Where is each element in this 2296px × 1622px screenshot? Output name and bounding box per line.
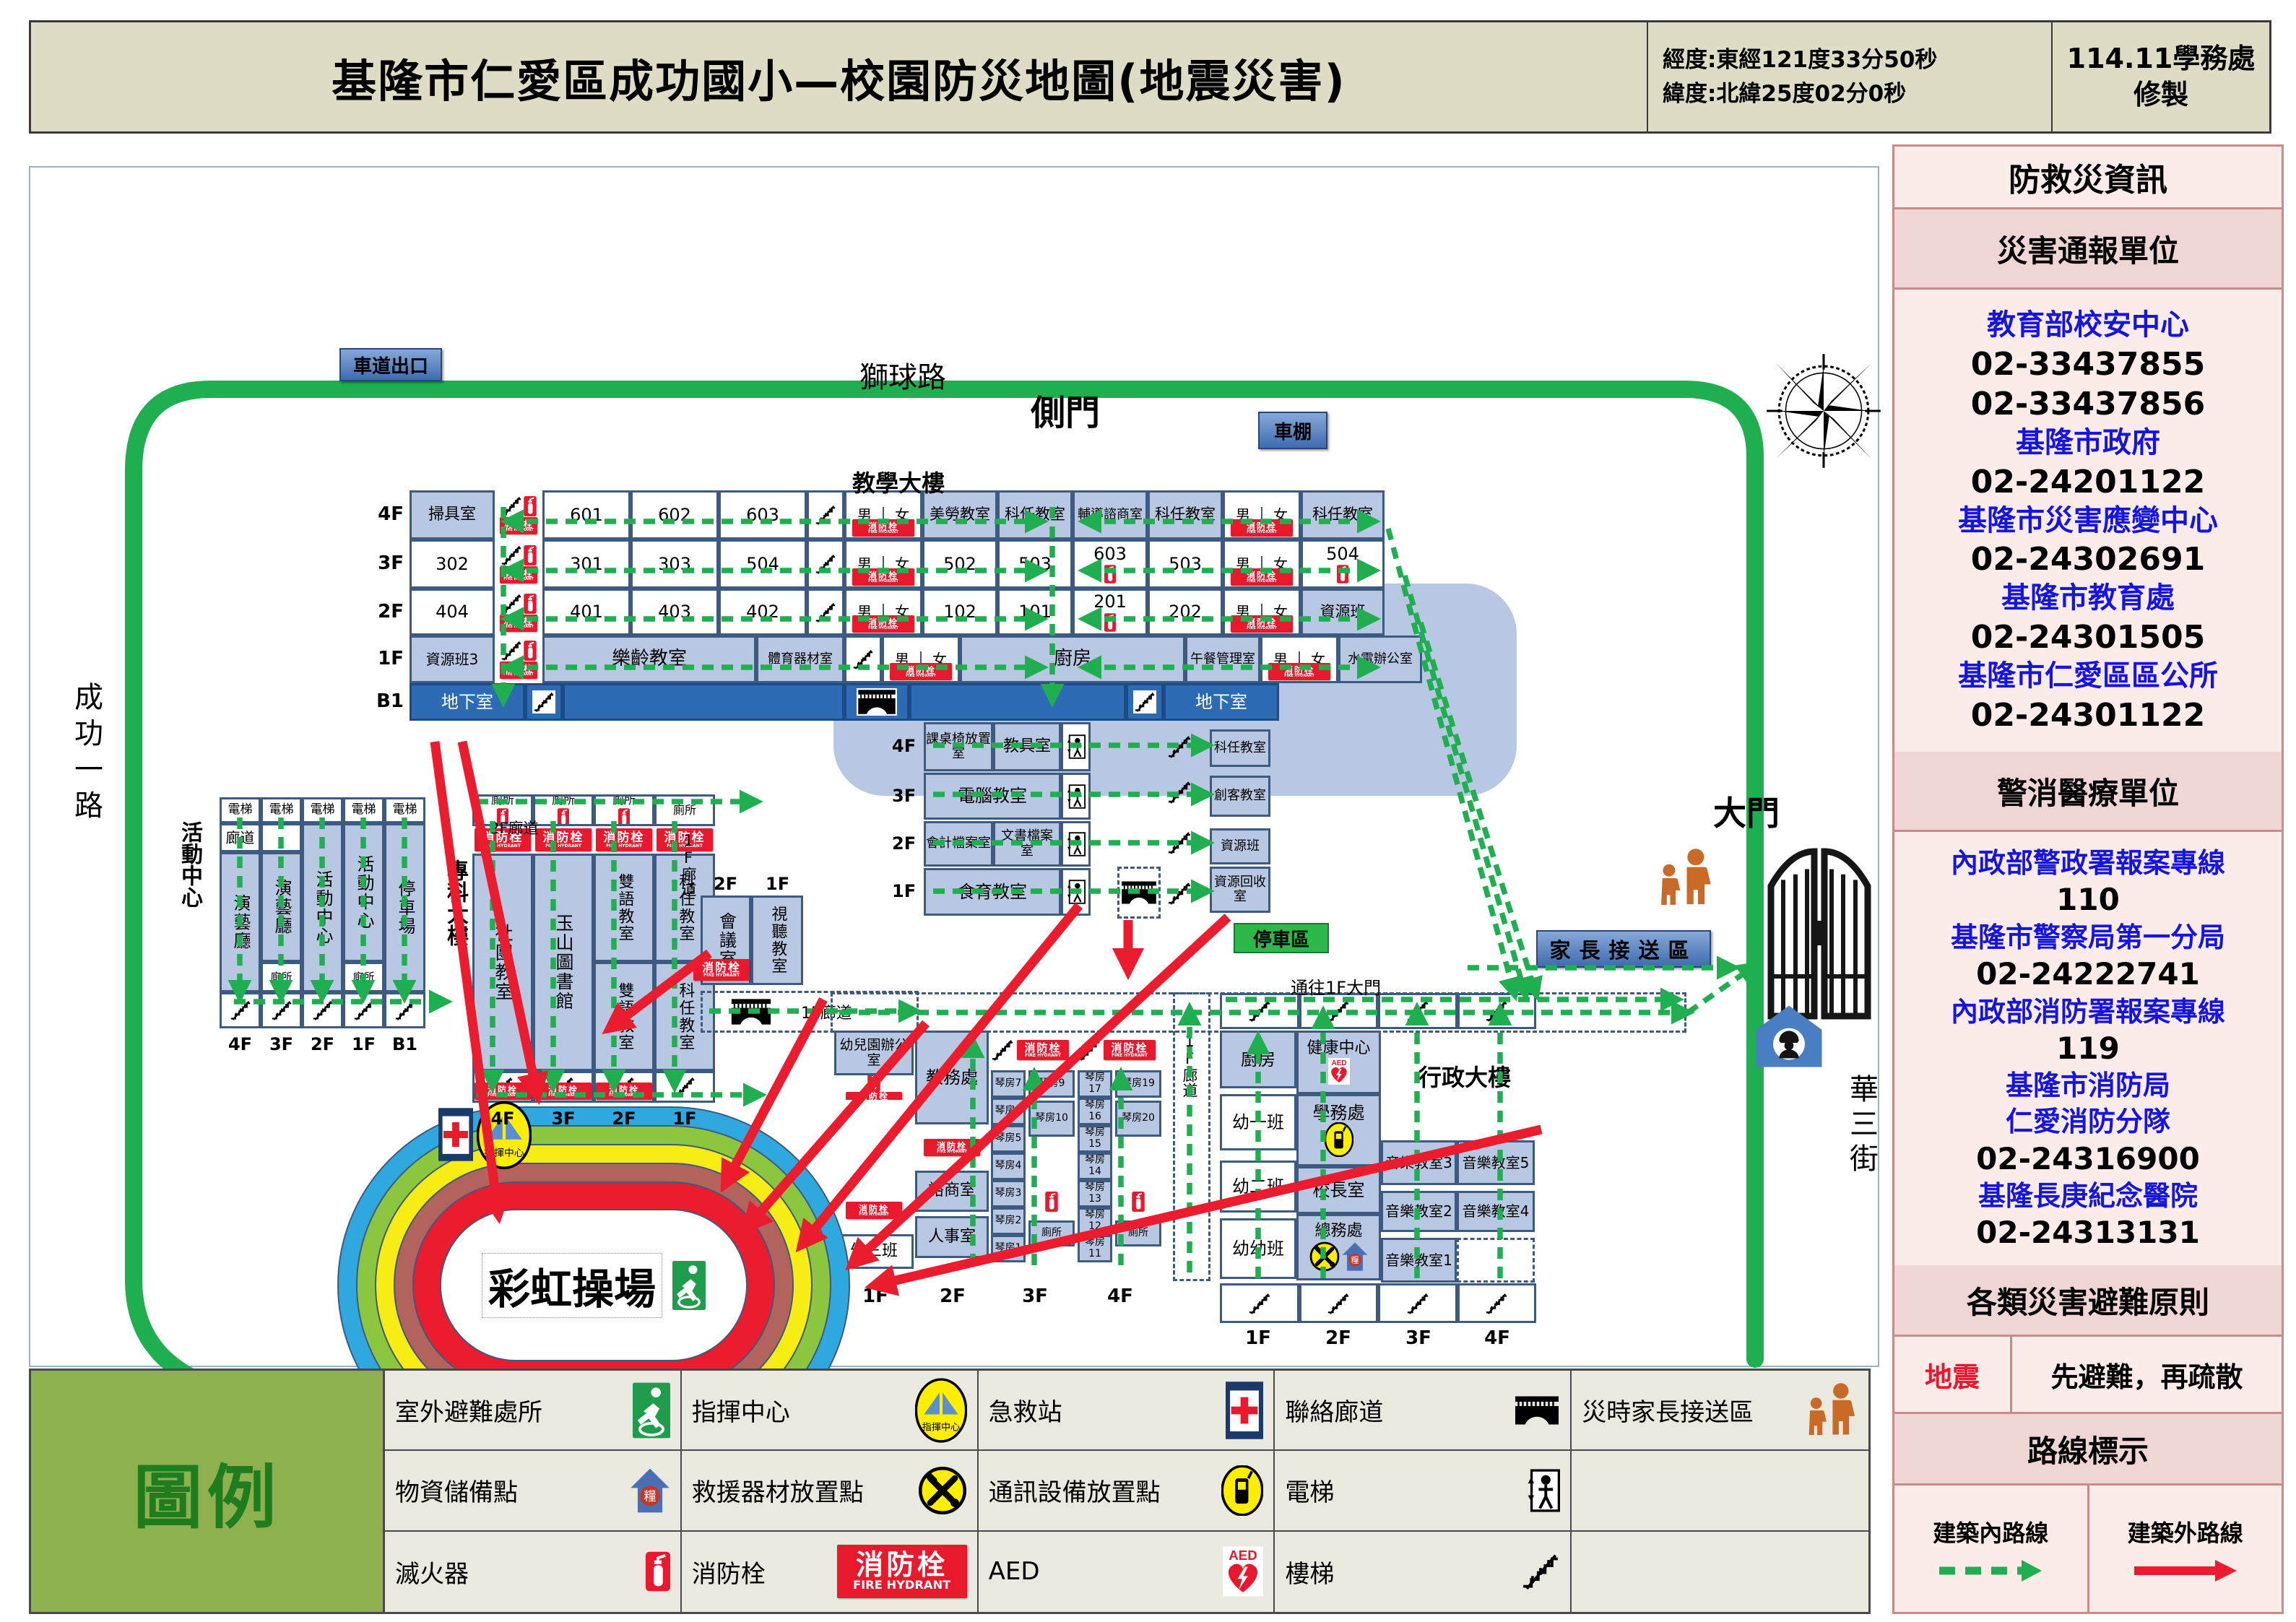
- room-cell: 資源回收室: [1210, 867, 1270, 913]
- route-outside: 建築外路線: [2089, 1486, 2282, 1612]
- agency-name: 基隆市仁愛區區公所: [1958, 657, 2218, 695]
- room-cell: 603: [719, 490, 807, 539]
- room-cell: 教務處: [915, 1031, 989, 1124]
- room-label: 幼二班: [1232, 1177, 1284, 1197]
- room-cell: 504: [1301, 539, 1385, 589]
- legend-item: 物資儲備點糧: [385, 1451, 682, 1531]
- room-label: 掃具室: [428, 506, 476, 524]
- legend-item-label: 通訊設備放置點: [989, 1473, 1215, 1508]
- fire-hydrant-sign: 消防栓FIRE HYDRANT: [1017, 1040, 1069, 1060]
- agency-phone: 02-24302691: [1971, 539, 2205, 579]
- room-cell: 課桌椅放置室: [924, 722, 993, 771]
- panel-section-header: 警消醫療單位: [1894, 752, 2282, 832]
- legend-item: 救援器材放置點: [682, 1451, 979, 1531]
- room-label: 603: [1093, 545, 1127, 564]
- room-label: 教務處: [926, 1068, 978, 1088]
- corridor-2f-label: 2F廊道: [490, 817, 538, 838]
- agency-name: 教育部校安中心: [1987, 306, 2189, 344]
- room-cell: 303: [631, 539, 719, 589]
- title-bar: 基隆市仁愛區成功國小—校園防災地圖(地震災害) 經度:東經121度33分50秒 …: [29, 20, 2271, 134]
- piano-rooms: 琴房17琴房16琴房15琴房14琴房13琴房12琴房11: [1078, 1070, 1112, 1262]
- floor-label: 4F: [1106, 1285, 1135, 1307]
- runman-icon: [633, 1382, 670, 1439]
- room-label: 學務處: [1313, 1103, 1365, 1123]
- fire-hydrant-sign: 消防栓FIRE HYDRANT: [846, 1092, 902, 1101]
- svg-text:指揮中心: 指揮中心: [922, 1421, 960, 1432]
- room-label: 廁所: [270, 971, 292, 984]
- room-cell: 琴房12: [1078, 1207, 1112, 1235]
- room-label: 電梯: [269, 803, 294, 817]
- stairs-icon: [501, 545, 522, 566]
- piano-rooms: 琴房9琴房10廁所: [1028, 1070, 1075, 1246]
- building-column: 健康中心AED學務處校長室總務處糧: [1296, 1031, 1381, 1280]
- ext-icon: [524, 496, 537, 516]
- room-label: 活動中心: [354, 855, 373, 930]
- room-cell: 體育器材室: [756, 636, 844, 683]
- fire-hydrant-sign: 消防栓FIRE HYDRANT: [1231, 615, 1293, 633]
- stairs-icon: [1167, 778, 1192, 807]
- agency-name: 基隆市教育處: [2001, 579, 2175, 617]
- room-label: 琴房12: [1080, 1210, 1110, 1232]
- lift-icon: [1527, 1468, 1560, 1513]
- room-label: 教具室: [1003, 738, 1051, 756]
- legend-item-label: 電梯: [1285, 1473, 1520, 1508]
- comm-icon: [1325, 1122, 1353, 1157]
- room-cell: 廁所: [343, 962, 384, 992]
- stairs-icon: [1521, 1552, 1560, 1591]
- map-cell: 男女消防栓FIRE HYDRANT: [844, 539, 922, 589]
- fire-hydrant-sign: 消防栓FIRE HYDRANT: [535, 1083, 592, 1100]
- admin-stair-row: [1220, 1283, 1536, 1323]
- room-cell: 幼二班: [1220, 1161, 1296, 1213]
- building-central-east: 科任教室創客教室資源班資源回收室: [1210, 729, 1270, 913]
- room-label: 玉山圖書館: [553, 914, 573, 1011]
- stairs-icon: [815, 504, 836, 526]
- floor-label: 3F: [1404, 1327, 1433, 1349]
- map-cell: 消防栓FIRE HYDRANT: [495, 490, 542, 539]
- panel-section-header: 路線標示: [1894, 1414, 2282, 1486]
- room-cell: 地下室: [410, 683, 525, 721]
- room-cell: 地下室: [1164, 683, 1279, 721]
- room-cell: 601: [542, 490, 631, 539]
- legend-item: 消防栓消防栓FIRE HYDRANT: [682, 1532, 979, 1612]
- room-cell: 校長室: [1296, 1166, 1381, 1214]
- room-label: 琴房6: [995, 1106, 1022, 1117]
- room-cell: 廁所: [654, 794, 715, 826]
- room-cell: 101: [997, 589, 1073, 636]
- room-cell: 503: [997, 539, 1073, 589]
- room-cell: 琴房1: [991, 1235, 1026, 1262]
- building-kg-2f: 教務處消防栓FIRE HYDRANT諮商室人事室: [915, 1031, 989, 1258]
- room-cell: 廊道: [220, 823, 261, 852]
- room-cell: 雙語教室: [594, 854, 654, 962]
- pickup-zone-label: 家長接送區: [1536, 930, 1711, 968]
- room-cell: 午餐管理室: [1185, 636, 1260, 683]
- legend-item: 滅火器: [385, 1532, 682, 1612]
- room-label: 音樂教室3: [1385, 1155, 1452, 1171]
- map-cell: [1028, 1183, 1075, 1220]
- gate-icon: [1762, 836, 1876, 1023]
- room-label: 303: [658, 555, 691, 574]
- legend-item-label: 指揮中心: [692, 1392, 908, 1428]
- hydrantbig-icon: 消防栓FIRE HYDRANT: [837, 1545, 967, 1598]
- legend-item-label: AED: [989, 1557, 1216, 1586]
- room-cell: 掃具室: [410, 490, 495, 539]
- rescue-icon: [1309, 1241, 1340, 1272]
- ext-icon: [524, 641, 537, 661]
- room-label: 403: [658, 602, 691, 622]
- svg-text:糧: 糧: [644, 1489, 656, 1503]
- route-outside-label: 建築外路線: [2128, 1515, 2243, 1548]
- room-label: 活動中心: [313, 870, 332, 945]
- aed-icon: AED: [1223, 1546, 1263, 1597]
- legend: 圖例 室外避難處所指揮中心指揮中心急救站聯絡廊道災時家長接送區物資儲備點糧救援器…: [29, 1369, 1871, 1614]
- room-label: 雙語教室: [615, 982, 633, 1051]
- firstaid-icon: [438, 1108, 473, 1161]
- room-label: 資源班3: [426, 651, 479, 667]
- room-cell: 102: [922, 589, 997, 636]
- room-label: 廁所: [352, 971, 374, 984]
- fire-hydrant-sign: 消防栓FIRE HYDRANT: [500, 615, 537, 632]
- room-cell: 創客教室: [1210, 776, 1270, 817]
- room-cell: 502: [922, 539, 997, 589]
- playground-label: 彩虹操場: [482, 1253, 662, 1318]
- agency-name: 仁愛消防分隊: [2006, 1103, 2170, 1140]
- room-cell: 402: [719, 589, 807, 636]
- agency-name: 基隆長庚紀念醫院: [1978, 1178, 2198, 1214]
- room-label: 401: [570, 602, 603, 622]
- floor-label: 3F: [269, 1034, 295, 1054]
- room-label: 301: [570, 555, 603, 574]
- room-label: 廁所: [673, 804, 696, 817]
- building-column: 廚房幼一班幼二班幼幼班: [1220, 1031, 1296, 1279]
- room-label: 廚房: [1054, 649, 1091, 669]
- agency-phone: 02-33437855: [1971, 344, 2205, 384]
- fire-hydrant-sign: 消防栓FIRE HYDRANT: [1104, 1040, 1156, 1060]
- legend-item: 急救站: [979, 1371, 1275, 1451]
- campus-map: 掃具室消防栓FIRE HYDRANT601602603男女消防栓FIRE HYD…: [29, 166, 1879, 1367]
- stairs-icon: [815, 602, 836, 623]
- room-cell: 演藝廳: [261, 852, 302, 962]
- map-cell: [563, 683, 844, 721]
- street-left: 成功一路: [65, 682, 107, 826]
- room-label: 琴房7: [995, 1078, 1022, 1090]
- room-cell: 人事室: [915, 1216, 989, 1258]
- room-cell: 廁所: [594, 794, 654, 826]
- room-cell: 音樂教室2: [1381, 1191, 1457, 1232]
- legend-item: 樓梯: [1275, 1532, 1572, 1612]
- aed-icon: AED: [1328, 1058, 1350, 1085]
- map-cell: [343, 992, 384, 1028]
- room-cell: 科任教室: [1148, 490, 1223, 539]
- panel-section-header: 災害通報單位: [1894, 209, 2282, 290]
- room-cell: 幼一班: [1220, 1094, 1296, 1150]
- map-cell: 消防栓FIRE HYDRANT: [915, 1124, 989, 1171]
- room-cell: 琴房9: [1028, 1070, 1075, 1098]
- room-label: 雙語教室: [615, 873, 633, 942]
- room-label: 琴房13: [1080, 1182, 1110, 1205]
- room-label: 總務處: [1314, 1223, 1362, 1241]
- stairs-icon: [353, 999, 375, 1021]
- fire-hydrant-sign: 消防栓FIRE HYDRANT: [693, 959, 750, 981]
- room-cell: 電梯: [261, 797, 302, 823]
- parentchild-icon: [1657, 848, 1715, 908]
- map-cell: [807, 490, 844, 539]
- room-label: 琴房11: [1080, 1237, 1110, 1259]
- floor-label: 2F: [310, 1034, 336, 1054]
- floor-label: 4F: [892, 736, 916, 756]
- info-panel: 防救災資訊災害通報單位教育部校安中心02-3343785502-33437856…: [1892, 144, 2284, 1614]
- floor-label: 1F: [372, 648, 404, 669]
- legend-item-label: 救援器材放置點: [692, 1473, 911, 1508]
- map-cell: [384, 992, 425, 1028]
- room-cell: 201: [1073, 589, 1148, 636]
- panel-title: 防救災資訊: [1894, 147, 2282, 209]
- main-gate-icon: [1762, 836, 1878, 1025]
- stairs-icon: [815, 553, 836, 575]
- fire-hydrant-sign: 消防栓FIRE HYDRANT: [500, 566, 537, 584]
- room-cell: 健康中心AED: [1296, 1031, 1381, 1094]
- room-label: 廊道: [226, 830, 255, 846]
- room-cell: 水電辦公室: [1338, 636, 1422, 683]
- room-label: 琴房16: [1080, 1100, 1110, 1122]
- route-key-row: 建築內路線 建築外路線: [1894, 1486, 2282, 1612]
- room-label: 演藝廳: [230, 894, 250, 950]
- room-label: 文書檔案室: [995, 829, 1059, 858]
- map-cell: 消防栓FIRE HYDRANT: [533, 826, 594, 854]
- room-cell: 琴房15: [1078, 1125, 1112, 1153]
- floor-label: 2F: [372, 601, 404, 623]
- room-label: 幼幼班: [1232, 1239, 1284, 1259]
- room-cell: 403: [631, 589, 719, 636]
- room-label: 人事室: [928, 1228, 976, 1246]
- ext-icon: [524, 594, 537, 614]
- disaster-rule: 先避難，再疏散: [2012, 1337, 2282, 1412]
- map-cell: [261, 823, 302, 852]
- room-label: 課桌椅放置室: [926, 732, 991, 761]
- version-note: 114.11學務處 修製: [2051, 22, 2269, 131]
- piano-rooms: 琴房7琴房6琴房5琴房4琴房3琴房2琴房1: [991, 1070, 1026, 1262]
- main-gate-label: 大門: [1713, 787, 1780, 835]
- map-cell: [261, 992, 302, 1028]
- parking-zone-label: 停車區: [1234, 923, 1329, 953]
- link-bridge: [1117, 867, 1161, 919]
- fire-hydrant-sign: 消防栓FIRE HYDRANT: [852, 519, 914, 537]
- stairs-icon: [1406, 1292, 1429, 1315]
- floor-label: B1: [372, 690, 404, 712]
- map-cell: 消防栓FIRE HYDRANT: [533, 1071, 594, 1103]
- fire-hydrant-sign: 消防栓FIRE HYDRANT: [852, 568, 914, 586]
- disaster-type: 地震: [1894, 1337, 2012, 1412]
- fire-hydrant-sign: 消防栓FIRE HYDRANT: [500, 517, 537, 534]
- fire-hydrant-sign: 消防栓FIRE HYDRANT: [500, 662, 537, 679]
- svg-text:AED: AED: [1331, 1059, 1346, 1067]
- room-cell: 音樂教室5: [1457, 1140, 1535, 1185]
- stairs-icon: [501, 593, 522, 615]
- legend-item-label: 消防栓: [692, 1554, 830, 1590]
- room-cell: 教具室: [993, 722, 1061, 771]
- runman-icon: [672, 1261, 706, 1310]
- room-label: 視聽教室: [768, 906, 787, 975]
- fire-hydrant-sign: 消防栓FIRE HYDRANT: [924, 1139, 980, 1156]
- room-label: 創客教室: [1214, 789, 1266, 803]
- car-exit-label: 車道出口: [339, 348, 442, 381]
- legend-item-label: 滅火器: [395, 1554, 638, 1590]
- room-cell: 文書檔案室: [993, 821, 1061, 867]
- fire-hydrant-sign: 消防栓FIRE HYDRANT: [596, 1083, 652, 1100]
- room-label: 水電辦公室: [1348, 652, 1413, 667]
- legend-item-label: 樓梯: [1285, 1554, 1514, 1590]
- stairs-icon: [501, 640, 522, 662]
- room-cell: 科任教室: [1210, 729, 1270, 767]
- room-cell: 音樂教室1: [1381, 1238, 1457, 1283]
- legend-item-label: 室外避難處所: [395, 1392, 625, 1428]
- room-label: 幼一班: [1232, 1113, 1284, 1132]
- room-cell: 琴房6: [991, 1098, 1026, 1125]
- agency-name: 內政部消防署報案專線: [1951, 994, 2225, 1030]
- room-cell: 琴房7: [991, 1070, 1026, 1098]
- ext-icon: [1132, 1192, 1145, 1212]
- legend-item-label: 災時家長接送區: [1582, 1392, 1798, 1428]
- stairs-icon: [674, 1076, 696, 1098]
- room-cell: 603: [1073, 539, 1148, 589]
- map-cell: [1061, 773, 1091, 820]
- room-label: 502: [943, 555, 976, 574]
- lift-icon: [1067, 880, 1086, 904]
- legend-item-label: 物資儲備點: [395, 1473, 623, 1508]
- room-label: 地下室: [1195, 693, 1247, 712]
- floor-label: 4F: [372, 503, 404, 525]
- floor-label: 4F: [228, 1034, 254, 1054]
- room-cell: 社團教室: [472, 854, 533, 1071]
- room-label: 停車場: [395, 880, 415, 936]
- room-cell: 503: [1148, 539, 1223, 589]
- ext-icon: [1104, 565, 1116, 584]
- room-label: 科任教室: [1005, 506, 1065, 524]
- floor-label: 1F: [672, 1109, 698, 1129]
- stairs-icon: [230, 999, 251, 1021]
- lift-icon: [1067, 832, 1086, 856]
- room-label: 食育教室: [958, 882, 1027, 902]
- ext-icon: [646, 1551, 670, 1592]
- room-cell: 學務處: [1296, 1094, 1381, 1166]
- room-label: 琴房10: [1035, 1113, 1068, 1124]
- parent-child-icon: [1657, 848, 1716, 924]
- room-cell: 玉山圖書館: [533, 854, 594, 1071]
- map-cell: [654, 1071, 715, 1103]
- ext-icon: [558, 808, 569, 826]
- lift-icon: [1067, 734, 1086, 759]
- room-label: 樂齡教室: [612, 649, 687, 669]
- building-central-row: 食育教室: [924, 868, 1091, 916]
- map-cell: 男女消防栓FIRE HYDRANT: [1223, 539, 1301, 589]
- room-cell: 音樂教室4: [1457, 1191, 1535, 1232]
- room-cell: 301: [542, 539, 631, 589]
- building-central-row: 電腦教室: [924, 773, 1091, 820]
- ext-icon: [1104, 613, 1116, 632]
- stairs-icon: [1133, 690, 1156, 714]
- room-label: 音樂教室4: [1463, 1203, 1530, 1219]
- room-cell: 幼兒園辦公室: [834, 1031, 914, 1075]
- stairs-icon: [532, 690, 555, 714]
- room-cell: 食育教室: [924, 868, 1061, 916]
- map-cell: [844, 636, 882, 683]
- contact-list: 內政部警政署報案專線110基隆市警察局第一分局02-24222741內政部消防署…: [1894, 832, 2282, 1265]
- room-label: 地下室: [441, 693, 493, 712]
- room-label: 琴房1: [995, 1243, 1022, 1254]
- compass-rose: [1762, 350, 1886, 474]
- map-cell: 男女消防栓FIRE HYDRANT: [882, 636, 960, 683]
- map-cell: [844, 683, 909, 721]
- bridge-icon: [1514, 1395, 1560, 1426]
- principle-row: 地震 先避難，再疏散: [1894, 1337, 2282, 1414]
- room-cell: 停車場: [384, 823, 425, 992]
- map-cell: 消防栓FIRE HYDRANT: [594, 1071, 654, 1103]
- legend-item: 災時家長接送區: [1572, 1371, 1868, 1451]
- room-label: 資源回收室: [1212, 875, 1268, 904]
- room-cell: 琴房16: [1078, 1098, 1112, 1125]
- legend-item-label: 急救站: [989, 1392, 1219, 1428]
- room-label: 廚房: [1241, 1050, 1275, 1070]
- room-cell: 404: [410, 589, 495, 636]
- room-cell: 琴房20: [1115, 1101, 1161, 1137]
- building-central-row: 課桌椅放置室教具室: [924, 722, 1091, 771]
- room-cell: 雙語教室: [594, 962, 654, 1071]
- piano-col-header: 消防栓FIRE HYDRANT: [991, 1032, 1076, 1068]
- stairs-icon: [1167, 732, 1192, 761]
- map-cell: [909, 683, 1126, 721]
- room-cell: 廁所: [1028, 1220, 1075, 1246]
- room-label: 504: [746, 555, 779, 574]
- map-cell: [220, 992, 261, 1028]
- floor-label: 3F: [550, 1109, 576, 1129]
- contact-list: 教育部校安中心02-3343785502-33437856基隆市政府02-242…: [1894, 290, 2282, 752]
- room-cell: 琴房2: [991, 1207, 1026, 1235]
- command-icon: 指揮中心: [915, 1378, 967, 1443]
- room-cell: 樂齡教室: [542, 636, 756, 683]
- stairs-icon: [991, 1038, 1014, 1062]
- room-cell: 音樂教室3: [1381, 1140, 1457, 1185]
- floor-label: 2F: [892, 833, 916, 854]
- room-cell: 總務處糧: [1296, 1214, 1381, 1280]
- agency-name: 基隆市災害應變中心: [1958, 502, 2218, 540]
- route-inside-label: 建築內路線: [1933, 1515, 2048, 1548]
- room-label: 美勞教室: [930, 506, 990, 524]
- room-label: 廁所: [612, 794, 636, 807]
- green-dashed-arrow-icon: [1936, 1558, 2045, 1583]
- room-label: 輔導諮商室: [1078, 508, 1143, 522]
- stairs-icon: [1327, 1292, 1350, 1315]
- corridor-zone: [831, 992, 1686, 1033]
- latitude: 緯度:北緯25度02分0秒: [1663, 77, 2051, 111]
- piano-col-header: 消防栓FIRE HYDRANT: [1078, 1032, 1163, 1068]
- comm-icon: [1221, 1465, 1263, 1516]
- room-label: 琴房9: [1039, 1078, 1065, 1090]
- map-cell: 男女消防栓FIRE HYDRANT: [844, 589, 922, 636]
- bridge-icon: [857, 688, 897, 716]
- legend-title: 圖例: [31, 1371, 385, 1612]
- room-label: 603: [746, 506, 779, 525]
- legend-item: AEDAED: [979, 1532, 1275, 1612]
- coordinates: 經度:東經121度33分50秒 緯度:北緯25度02分0秒: [1647, 22, 2051, 131]
- stairs-icon: [271, 999, 293, 1021]
- room-label: 電梯: [393, 803, 417, 817]
- room-label: 廁所: [552, 794, 575, 807]
- room-cell: 科任教室: [1301, 490, 1385, 539]
- room-label: 體育器材室: [768, 652, 833, 667]
- room-cell: 琴房3: [991, 1180, 1026, 1207]
- legend-grid: 室外避難處所指揮中心指揮中心急救站聯絡廊道災時家長接送區物資儲備點糧救援器材放置…: [385, 1371, 1868, 1612]
